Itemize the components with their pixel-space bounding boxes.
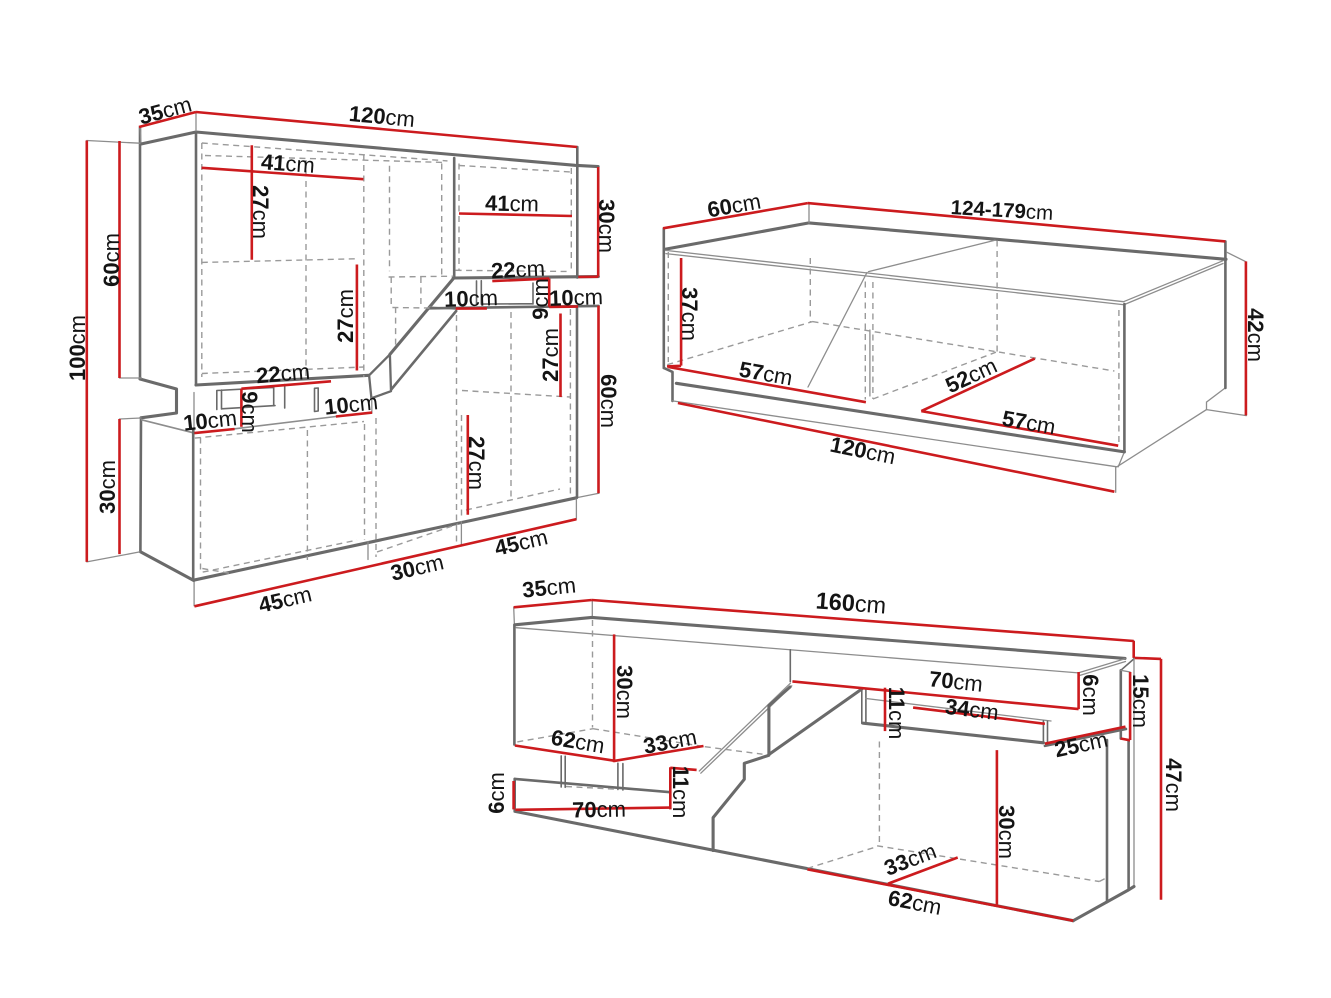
svg-text:47cm: 47cm <box>1162 758 1187 812</box>
svg-text:124-179cm: 124-179cm <box>950 196 1054 225</box>
svg-text:60cm: 60cm <box>597 374 622 428</box>
svg-text:30cm: 30cm <box>595 199 620 253</box>
svg-text:62cm: 62cm <box>886 885 944 920</box>
svg-text:42cm: 42cm <box>1244 308 1269 362</box>
svg-text:30cm: 30cm <box>95 460 120 514</box>
svg-text:25cm: 25cm <box>1052 726 1110 762</box>
svg-text:9cm: 9cm <box>238 391 263 433</box>
svg-text:6cm: 6cm <box>484 772 509 814</box>
svg-text:15cm: 15cm <box>1129 674 1154 728</box>
svg-text:100cm: 100cm <box>65 315 90 381</box>
svg-text:10cm: 10cm <box>444 285 499 312</box>
svg-text:33cm: 33cm <box>880 838 939 881</box>
svg-text:57cm: 57cm <box>737 356 794 390</box>
svg-text:45cm: 45cm <box>256 581 314 617</box>
svg-text:27cm: 27cm <box>538 328 563 382</box>
svg-text:35cm: 35cm <box>521 572 577 602</box>
svg-text:35cm: 35cm <box>136 91 194 129</box>
svg-text:37cm: 37cm <box>678 287 703 341</box>
svg-text:11cm: 11cm <box>885 687 910 740</box>
svg-text:30cm: 30cm <box>388 549 446 585</box>
svg-text:11cm: 11cm <box>669 766 694 819</box>
svg-text:120cm: 120cm <box>828 431 898 469</box>
svg-text:34cm: 34cm <box>944 693 1000 724</box>
svg-text:30cm: 30cm <box>613 665 638 719</box>
svg-text:33cm: 33cm <box>641 724 699 759</box>
svg-text:41cm: 41cm <box>485 190 539 216</box>
svg-text:70cm: 70cm <box>928 666 984 696</box>
svg-text:70cm: 70cm <box>572 796 626 822</box>
svg-text:6cm: 6cm <box>1079 674 1104 716</box>
svg-text:160cm: 160cm <box>815 587 887 618</box>
svg-text:27cm: 27cm <box>333 289 358 343</box>
svg-text:10cm: 10cm <box>549 284 604 311</box>
svg-text:52cm: 52cm <box>941 352 1000 397</box>
svg-text:41cm: 41cm <box>260 149 315 178</box>
svg-text:27cm: 27cm <box>249 185 274 239</box>
svg-text:45cm: 45cm <box>492 524 550 560</box>
svg-text:27cm: 27cm <box>465 436 490 490</box>
svg-text:10cm: 10cm <box>323 389 379 419</box>
svg-text:60cm: 60cm <box>99 233 124 287</box>
svg-text:30cm: 30cm <box>995 805 1020 859</box>
svg-text:22cm: 22cm <box>255 358 311 388</box>
svg-text:60cm: 60cm <box>705 188 762 222</box>
